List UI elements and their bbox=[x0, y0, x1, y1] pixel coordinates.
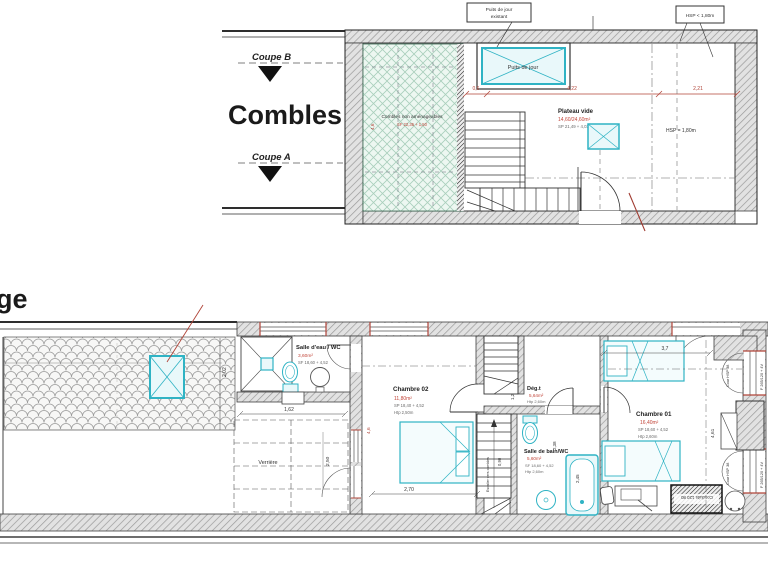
dim-37-label: 3,7 bbox=[662, 346, 669, 352]
deg-name: Dég.t bbox=[527, 386, 541, 392]
chambre02-sub2: Htp 2,50m bbox=[394, 410, 414, 415]
sdb-name: Salle de bain/WC bbox=[524, 449, 568, 455]
attic-hsp-mid: HSP = 1,80m bbox=[666, 128, 696, 134]
chambre01-name: Chambre 01 bbox=[636, 411, 672, 418]
sdb-sub2: Htp 2,60m bbox=[525, 469, 544, 474]
attic-title: Combles bbox=[228, 100, 342, 130]
conduits-block: Conduits 120 80 bbox=[671, 485, 722, 513]
desk-and-chair bbox=[600, 486, 657, 511]
verriere-area: Verrière 2,50 bbox=[234, 420, 348, 512]
attic-velux bbox=[588, 124, 619, 149]
bathroom-cabinet bbox=[282, 392, 304, 404]
dim-12-label: 1,2 bbox=[510, 393, 515, 400]
dim-245-label: 2,45 bbox=[575, 474, 580, 483]
chambre02: Chambre 02 11,80m² SP 18,40 + 4,52 Htp 2… bbox=[362, 366, 480, 497]
dim-461-label: 4,61 bbox=[710, 428, 716, 438]
window2-court-label: Cour HSP 38 bbox=[726, 463, 730, 485]
lightwell-tag-line1: Puits de jour bbox=[486, 7, 513, 13]
attic-dim-46: 4,6 bbox=[370, 123, 375, 130]
bathtub bbox=[566, 455, 598, 515]
coupe-a-label: Coupe A bbox=[252, 152, 291, 163]
salle-de-bain: Salle de bain/WC 5,60m² SF 18,60 + 4,52 … bbox=[523, 416, 599, 515]
stair-width: 0,90 bbox=[497, 457, 502, 466]
window2-ref-label: F 265/120 + 4V bbox=[760, 461, 764, 488]
deg-sub: Htp 2,60m bbox=[527, 399, 546, 404]
attic-dim-422: 4,22 bbox=[567, 86, 577, 92]
dim-270-label: 2,70 bbox=[404, 487, 414, 493]
toilet2 bbox=[523, 416, 538, 444]
attic-unfinished-area: Combles non aménageables SF 22,35 + 1,50… bbox=[363, 44, 464, 211]
floor-title-partial: ge bbox=[0, 284, 28, 314]
unfinished-attic-label: Combles non aménageables bbox=[381, 114, 443, 120]
lightwell-label: Puits de jour bbox=[508, 65, 539, 71]
salle-eau-name: Salle d'eau / WC bbox=[296, 345, 341, 351]
chimney bbox=[721, 401, 764, 450]
shower bbox=[241, 337, 292, 391]
chambre01-door bbox=[601, 386, 630, 413]
coupe-a-marker: Coupe A bbox=[238, 152, 343, 182]
chambre02-area: 11,80m² bbox=[394, 396, 412, 402]
attic-plan: Coupe B Combles Coupe A Comble bbox=[222, 3, 757, 231]
stair-label: Escalier vers combles bbox=[486, 457, 490, 492]
sdb-sub1: SF 18,60 + 4,52 bbox=[525, 463, 554, 468]
chambre01-area: 16,40m² bbox=[640, 420, 659, 426]
coupe-a-arrow-icon bbox=[258, 166, 282, 182]
plateau-sub-value: SP 21,49 + 4,03 bbox=[558, 124, 589, 129]
window1-court-label: Cour HSP 38 bbox=[726, 365, 730, 387]
hsp-tag-label: HSP < 1,80m bbox=[686, 13, 715, 19]
roof-velux bbox=[150, 356, 184, 398]
dim-46-label: 4,6 bbox=[366, 427, 372, 434]
verriere-dim-250: 2,50 bbox=[325, 456, 331, 466]
side-table bbox=[725, 491, 745, 511]
chambre01-sub2: Htp 2,60m bbox=[638, 434, 658, 439]
washbasin bbox=[311, 368, 330, 393]
washbasin2 bbox=[537, 491, 556, 510]
unfinished-attic-area-value: SF 22,35 + 1,50 bbox=[397, 122, 428, 127]
chambre02-door bbox=[450, 384, 478, 412]
window1-ref-label: F 265/120 + 4V bbox=[760, 363, 764, 390]
double-bed bbox=[400, 422, 473, 483]
dim-270: 2,70 bbox=[369, 487, 480, 497]
coupe-b-marker: Coupe B bbox=[238, 52, 343, 82]
toilet bbox=[283, 362, 299, 392]
lightwell-tag-line2: existant bbox=[491, 14, 508, 20]
plateau-name: Plateau vide bbox=[558, 109, 594, 115]
plateau-area-value: 14,60/24,60m² bbox=[558, 117, 591, 123]
attic-dim-221: 2,21 bbox=[693, 86, 703, 92]
dim-162-label: 1,62 bbox=[284, 407, 294, 413]
chambre02-name: Chambre 02 bbox=[393, 386, 429, 393]
deg-area: 5,64m² bbox=[529, 393, 544, 398]
attic-dim-06: 0,6 bbox=[473, 86, 480, 92]
conduits-label: Conduits 120 80 bbox=[680, 495, 713, 500]
attic-door bbox=[578, 167, 621, 224]
roof-dim-202: 2,02 bbox=[222, 367, 228, 377]
chambre02-sub1: SP 18,40 + 4,52 bbox=[394, 403, 425, 408]
coupe-b-label: Coupe B bbox=[252, 52, 291, 63]
chambre01-sub1: SP 18,60 + 4,52 bbox=[638, 427, 669, 432]
roof-area: 2,02 bbox=[3, 305, 235, 514]
floor-plan: ge 2,02 Verrière bbox=[0, 284, 768, 543]
single-bed-bottom bbox=[602, 441, 680, 481]
dim-162: 1,62 bbox=[237, 407, 348, 417]
single-bed-top bbox=[604, 341, 684, 381]
attic-lightwell: Puits de jour bbox=[477, 43, 570, 89]
coupe-b-arrow-icon bbox=[258, 66, 282, 82]
floorplan-page: Coupe B Combles Coupe A Comble bbox=[0, 0, 768, 576]
sdb-area: 5,60m² bbox=[527, 456, 542, 461]
sdb-door bbox=[545, 388, 573, 414]
salle-eau-area: 3,60m² bbox=[298, 353, 313, 359]
verriere-label: Verrière bbox=[258, 460, 277, 466]
salle-eau-sub: SF 18,60 + 4,52 bbox=[298, 360, 329, 365]
floorplan-drawing: Coupe B Combles Coupe A Comble bbox=[0, 0, 768, 576]
upper-stair-to-attic bbox=[484, 336, 518, 394]
